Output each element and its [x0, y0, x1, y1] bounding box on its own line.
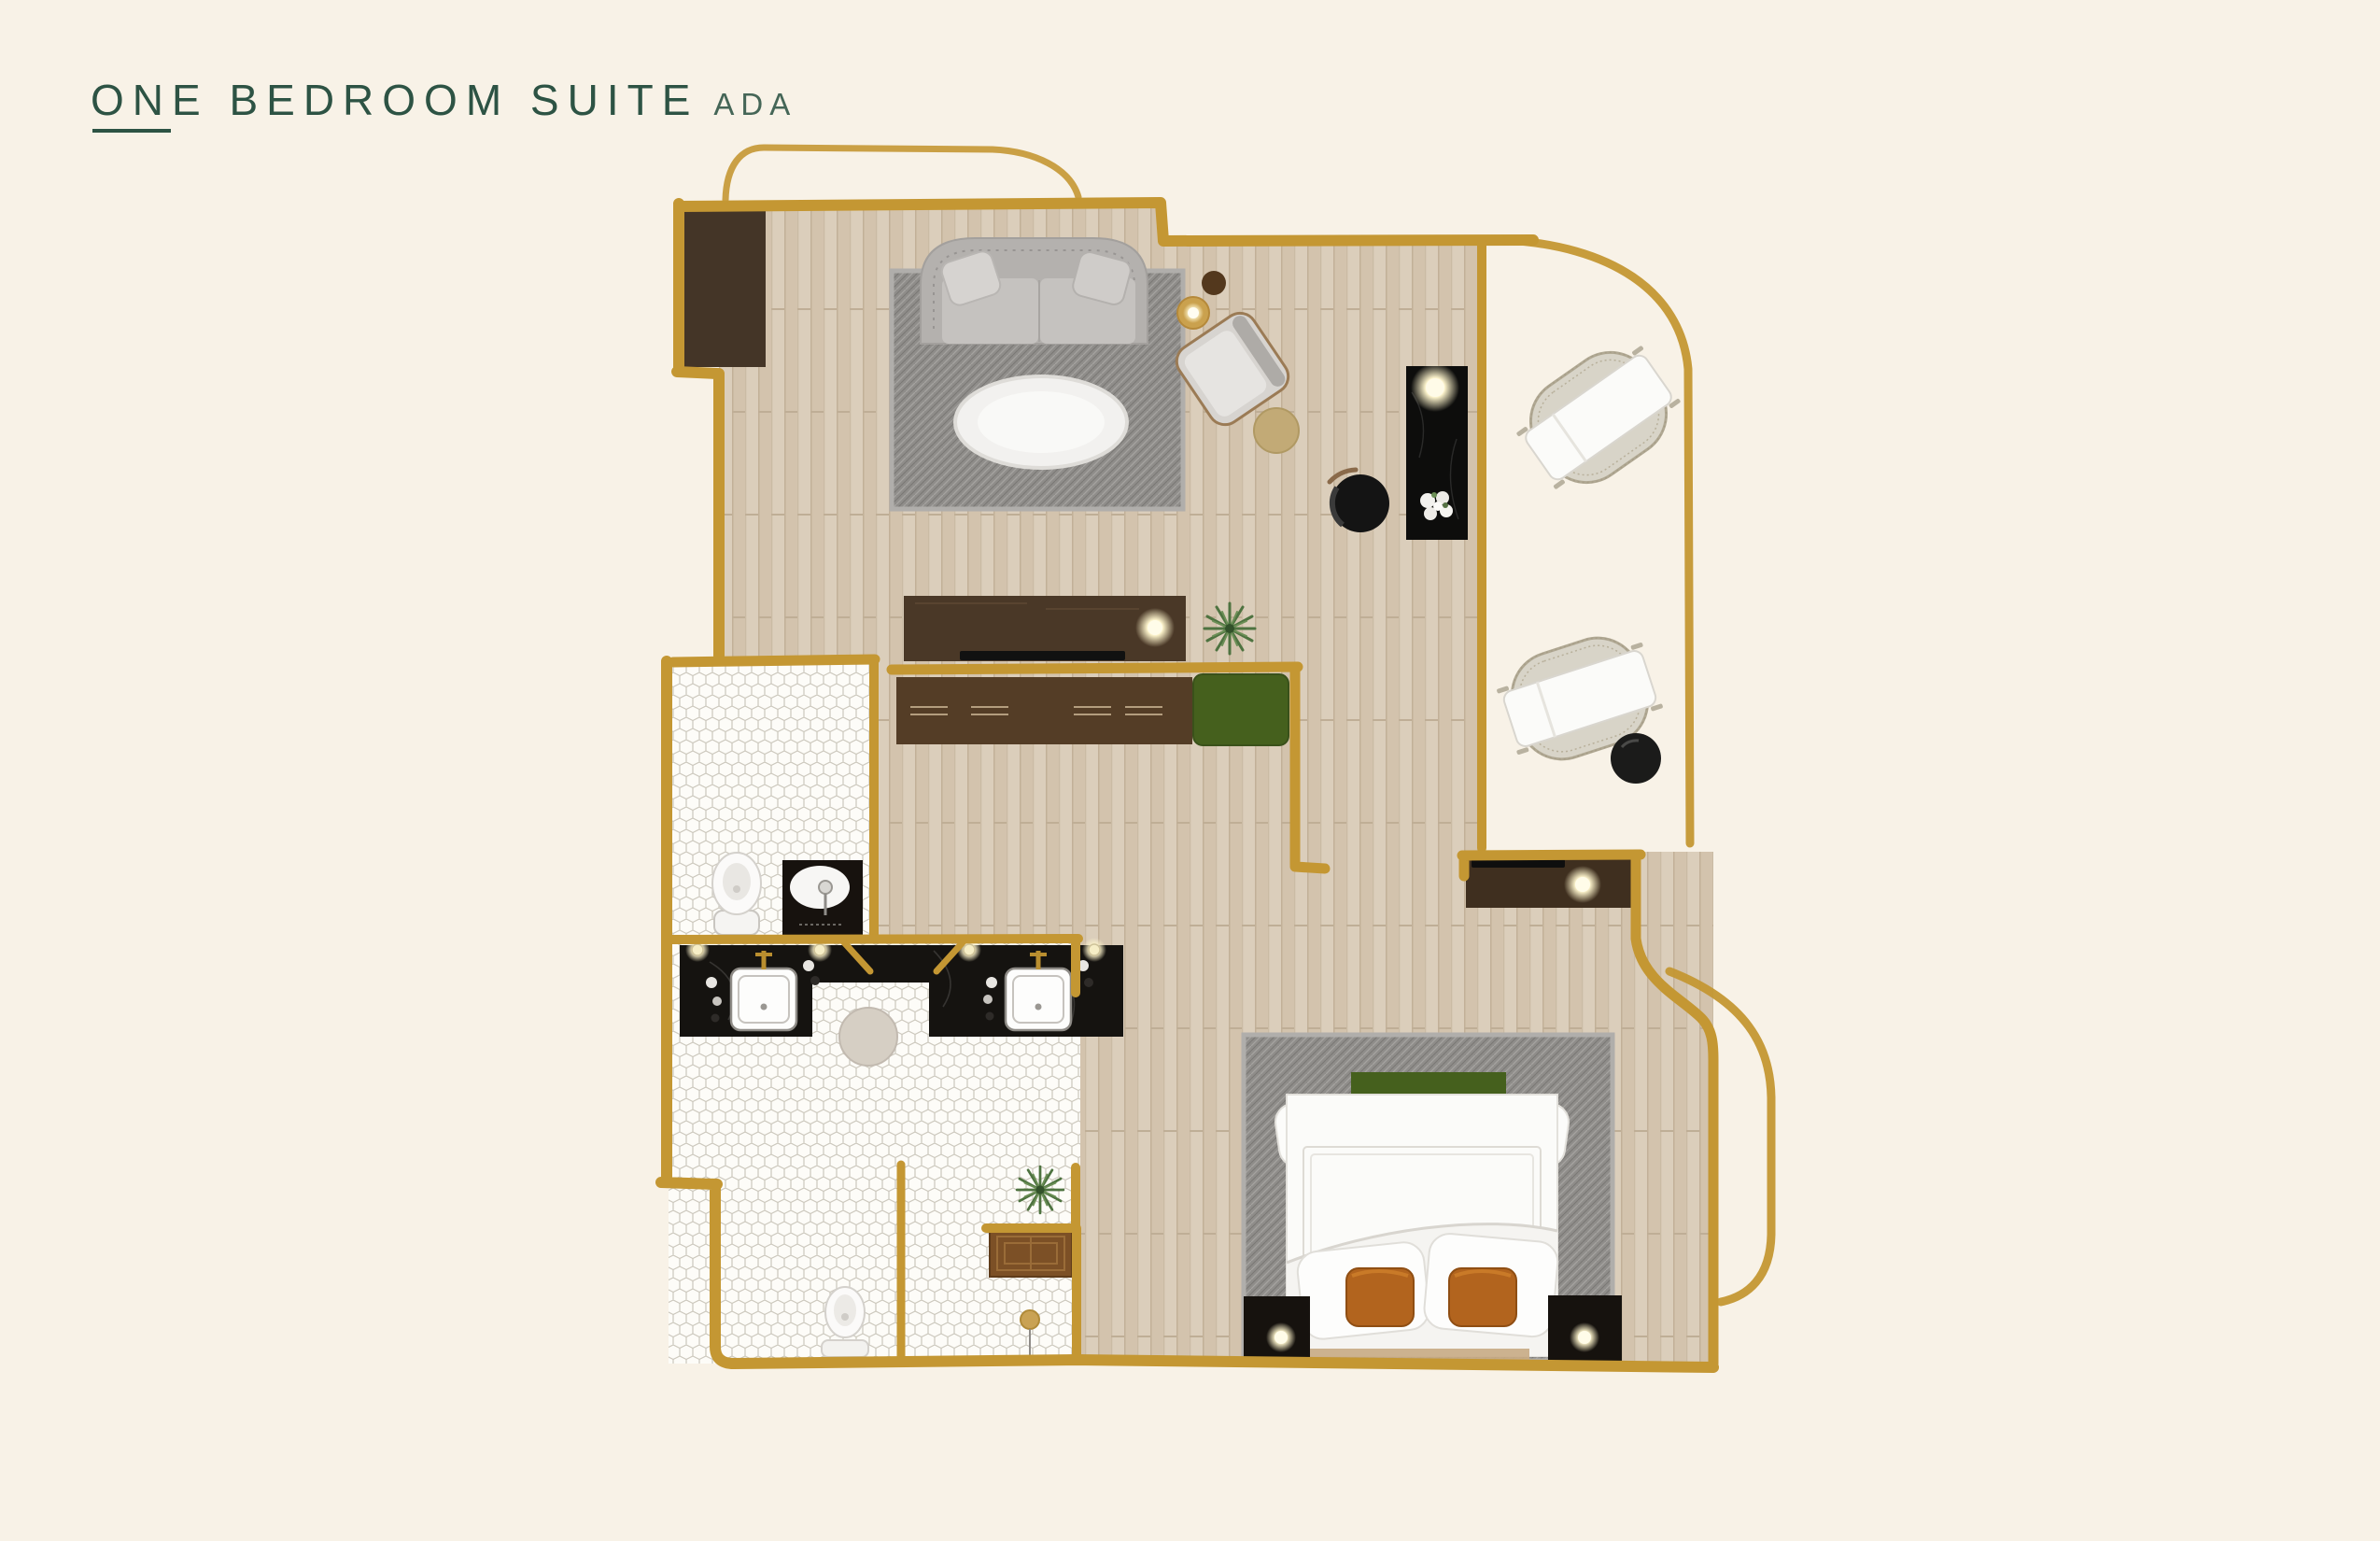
nightstand-left [1244, 1296, 1310, 1364]
title-underline [92, 129, 171, 133]
toilet-upper [712, 853, 761, 935]
teak-bench [990, 1230, 1072, 1277]
floorplan-canvas: ONE BEDROOM SUITEADA [0, 0, 2380, 1541]
toilet-lower [822, 1287, 868, 1357]
wall-bath-top [673, 659, 875, 662]
sofa [921, 238, 1148, 344]
orange-pillow [1449, 1268, 1516, 1326]
balcony-upper-outline [1505, 240, 1690, 843]
bed [1273, 1072, 1570, 1360]
vanity-stool [839, 1008, 897, 1066]
oval-coffee-table [955, 376, 1127, 468]
entry-door-swing [725, 148, 1078, 200]
television [960, 651, 1125, 660]
bedroom-console [1466, 856, 1641, 908]
balcony-chaise-lounge [1505, 329, 1693, 505]
entry-closet [682, 210, 766, 367]
bedroom-dresser [896, 677, 1192, 744]
green-bench [1193, 674, 1289, 745]
plan-header: ONE BEDROOM SUITEADA [91, 75, 796, 125]
balcony-side-table [1611, 733, 1661, 784]
tv-console [904, 596, 1186, 661]
writing-desk [1406, 363, 1468, 540]
orange-pillow [1346, 1268, 1414, 1326]
floorplan-drawing [0, 0, 2380, 1541]
page-title: ONE BEDROOM SUITE [91, 76, 698, 124]
ada-badge: ADA [713, 87, 796, 121]
round-pouf [1254, 408, 1299, 453]
nightstand-right [1548, 1295, 1622, 1365]
wall-bottom [734, 1360, 1713, 1367]
shower [782, 860, 863, 935]
accent-lamp-table [1177, 297, 1209, 329]
shower-head [819, 881, 832, 894]
wall-vanity [669, 939, 1078, 940]
round-side-table [1202, 271, 1226, 295]
desk-flowers [1420, 491, 1453, 520]
